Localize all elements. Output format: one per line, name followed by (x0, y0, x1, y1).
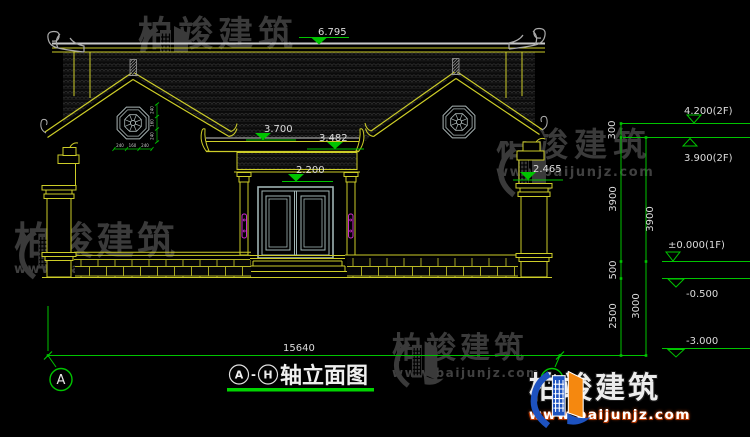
left-brick-band (75, 260, 251, 277)
ridge-ornament-right-icon (509, 29, 545, 50)
dim-porch-lower-value: 3.482 (319, 133, 348, 144)
brand-logo-color: 柏竣建筑 www.baijunjz.com (527, 364, 691, 423)
dim-porch-upper-value: 3.700 (264, 124, 293, 135)
gable-finial-icon (130, 60, 137, 76)
ridge-lines (52, 48, 545, 52)
dim-door-value: 2.200 (296, 165, 325, 176)
chain-2500-label: 2500 (608, 303, 619, 328)
porch-pilaster-right (344, 173, 358, 256)
ridge-ornament-left-icon (48, 32, 84, 53)
chain-3000-label: 3000 (631, 293, 642, 318)
entrance-steps (247, 256, 348, 278)
right-wall-corbel (517, 138, 545, 160)
dim-right-wall-value: 2.465 (533, 164, 562, 175)
bagua-window-left (117, 107, 149, 139)
title-axis-h-label: H (263, 369, 272, 382)
right-wall-base (345, 138, 545, 277)
level-0-label: ±0.000(1F) (668, 240, 725, 251)
gable-finial-icon (453, 59, 460, 75)
title-text: 轴立面图 (280, 363, 368, 389)
eave-tip-right-icon (541, 116, 547, 130)
left-base-molding (74, 252, 251, 259)
dim-ridge-value: 6.795 (318, 27, 347, 38)
left-corner-pilaster (42, 186, 76, 278)
door-mullion (295, 191, 297, 255)
dim-total-width-value: 15640 (283, 343, 315, 354)
window-dim-label: 240 (141, 143, 149, 148)
right-corner-pilaster (516, 184, 552, 278)
window-dim-label: 240 (150, 106, 155, 114)
bagua-window-right (443, 106, 475, 138)
dim-ridge: 6.795 (299, 27, 349, 45)
chain-3900b-label: 3900 (645, 206, 656, 231)
title-dash: - (251, 368, 256, 382)
right-brick-band (347, 258, 518, 277)
chain-300-label: 300 (607, 120, 618, 139)
brand-logo-color-icon (527, 364, 599, 432)
level-column: 4.200(2F) 3.900(2F) ±0.000(1F) -0.500 -3… (607, 106, 750, 357)
dim-chain-lines (621, 124, 646, 357)
drawing-title: A - H 轴立面图 (227, 363, 374, 392)
window-dim-label: 240 (116, 143, 124, 148)
porch-pilaster-left (237, 173, 251, 256)
dim-right-wall: 2.465 (513, 164, 563, 180)
entrance-door (258, 187, 333, 258)
chain-3900a-label: 3900 (608, 186, 619, 211)
level-3900-label: 3.900(2F) (684, 153, 733, 164)
door-leaf-left (266, 196, 290, 250)
level-4200-label: 4.200(2F) (684, 106, 733, 117)
window-dim-label: 240 (150, 132, 155, 140)
window-dim-label: 160 (129, 143, 137, 148)
left-wall-corbel (58, 143, 79, 164)
chain-500-label: 500 (608, 260, 619, 279)
level-minus3-label: -3.000 (686, 336, 718, 347)
title-axis-a-label: A (235, 369, 244, 382)
axis-bubble-a-label: A (57, 373, 66, 388)
window-dim-label: 160 (150, 119, 155, 127)
door-leaf-right (301, 196, 325, 250)
cad-elevation-screenshot: 柏竣建筑 www.baijunjz.com 柏竣建筑 www.baijunjz.… (0, 0, 750, 437)
title-underline (227, 388, 374, 392)
level-minus05-label: -0.500 (686, 289, 718, 300)
left-wall-base (58, 143, 251, 277)
